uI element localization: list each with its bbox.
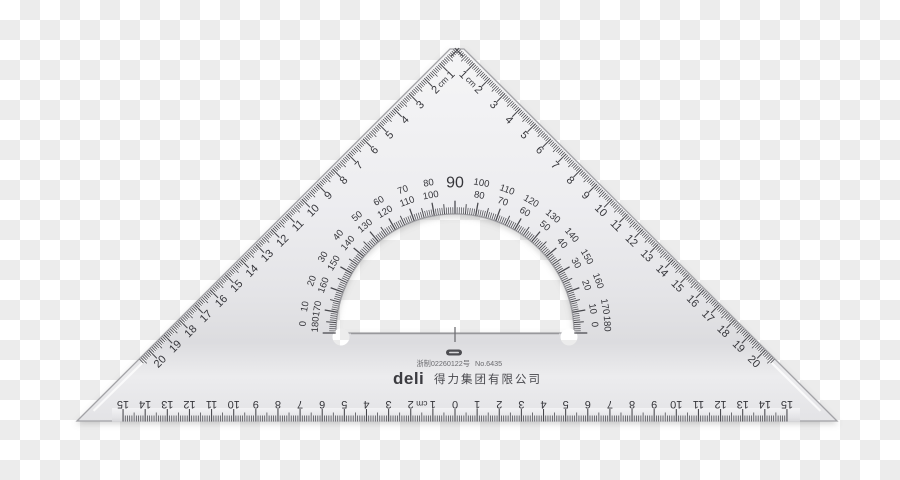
deli-oval-logo-text-hint xyxy=(449,352,459,354)
cm-number-label: 7 xyxy=(297,398,303,410)
cm-number-label: 12 xyxy=(714,398,726,410)
cm-number-label: 15 xyxy=(781,398,793,410)
cm-number-label: 14 xyxy=(759,398,771,410)
cm-number-label: 3 xyxy=(386,398,392,410)
cm-number-label: 5 xyxy=(563,398,569,410)
cm-number-label: 6 xyxy=(585,398,591,410)
cm-number-label: 6 xyxy=(319,398,325,410)
cm-number-label: 15 xyxy=(117,398,129,410)
cm-number-label: 4 xyxy=(363,398,369,410)
model-number-text: No.6435 xyxy=(475,359,502,368)
cm-number-label: 3 xyxy=(518,398,524,410)
cm-number-label: 13 xyxy=(161,398,173,410)
triangle-ruler-photo: 1234567891011121314151617181920cm 123456… xyxy=(0,0,900,480)
cm-number-label: 1 xyxy=(474,398,480,410)
inner-degree-label: 0 xyxy=(589,322,600,328)
cm-number-label: 0 xyxy=(452,398,458,410)
cm-number-label: 11 xyxy=(693,398,704,410)
cm-number-label: 10 xyxy=(670,398,682,410)
deli-wordmark: deli xyxy=(393,369,424,388)
cm-number-label: 14 xyxy=(139,398,151,410)
cm-number-label: cm xyxy=(416,399,427,409)
cm-number-label: 8 xyxy=(275,398,281,410)
cm-number-label: 10 xyxy=(228,398,240,410)
cm-number-label: 1 xyxy=(430,398,436,410)
cm-number-label: 4 xyxy=(540,398,546,410)
inner-degree-label: 10 xyxy=(586,303,599,315)
cm-number-label: 8 xyxy=(629,398,635,410)
product-image-triangle-ruler: 1234567891011121314151617181920cm 123456… xyxy=(0,0,900,480)
cm-number-label: 2 xyxy=(496,398,502,410)
inner-degree-label: 180 xyxy=(310,316,322,333)
inner-degree-label: 80 xyxy=(473,189,485,202)
cm-number-label: 13 xyxy=(737,398,749,410)
ninety-degree-label: 90 xyxy=(446,175,464,192)
cm-number-label: 5 xyxy=(341,398,347,410)
company-name-text: 得力集团有限公司 xyxy=(434,372,542,386)
cm-number-label: 9 xyxy=(253,398,259,410)
license-number-text: 浙制02260122号 xyxy=(416,359,470,368)
cm-number-label: 11 xyxy=(206,398,217,410)
cm-number-label: 12 xyxy=(183,398,195,410)
cm-number-label: 9 xyxy=(651,398,657,410)
outer-degree-label: 0 xyxy=(298,321,309,327)
outer-degree-label: 180 xyxy=(601,315,613,332)
outer-degree-label: 80 xyxy=(422,177,434,190)
cm-number-label: 2 xyxy=(408,398,414,410)
outer-degree-label: 10 xyxy=(299,300,312,312)
cm-number-label: 7 xyxy=(607,398,613,410)
